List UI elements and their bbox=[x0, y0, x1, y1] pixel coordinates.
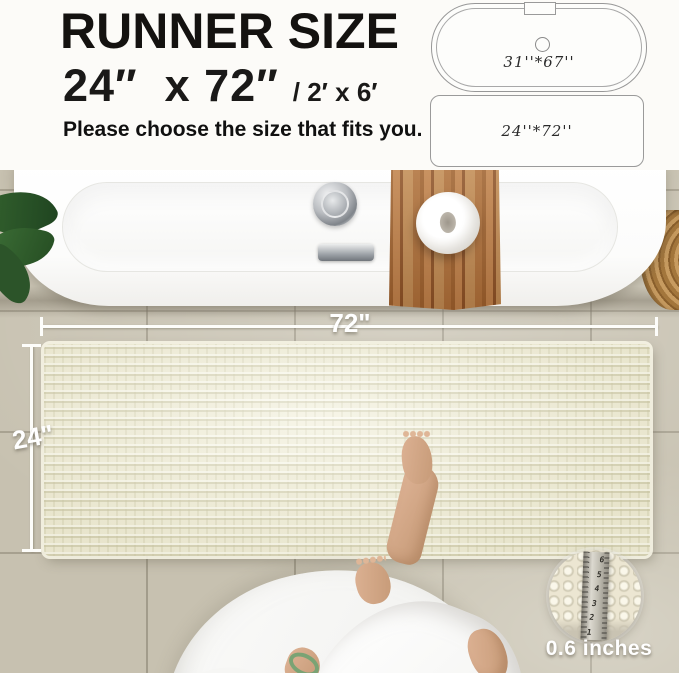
ruler-mark: 2 bbox=[588, 613, 594, 622]
drain-knob-inner bbox=[321, 190, 349, 218]
size-banner: RUNNER SIZE 24″ x 72″ / 2′ x 6′ Please c… bbox=[0, 0, 679, 170]
banner-subtitle: Please choose the size that fits you. bbox=[63, 118, 422, 142]
height-dimension-cap-top bbox=[22, 344, 41, 347]
runner-rug bbox=[44, 344, 650, 556]
bathtub-size-label: 31''*67'' bbox=[432, 53, 646, 71]
ruler-mark: 5 bbox=[596, 570, 602, 579]
bathroom-photo: 72" 24" 6 5 4 3 2 bbox=[0, 170, 679, 673]
width-dimension-cap-right bbox=[655, 317, 658, 336]
size-alt-text: / 2′ x 6′ bbox=[293, 77, 378, 108]
banner-title: RUNNER SIZE bbox=[60, 2, 399, 60]
width-dimension-cap-left bbox=[40, 317, 43, 336]
bathtub-size-diagram: 31''*67'' bbox=[431, 3, 647, 92]
person-right-toes bbox=[403, 429, 431, 440]
bathtub-drain-knob bbox=[313, 182, 357, 226]
ruler-mark: 1 bbox=[586, 628, 592, 637]
bathtub-faucet-mark bbox=[524, 2, 556, 15]
ruler-mark: 3 bbox=[591, 599, 597, 608]
runner-size-diagram: 24''*72'' bbox=[430, 95, 644, 167]
toilet-paper-core bbox=[440, 212, 457, 234]
pile-height-label: 0.6 inches bbox=[524, 637, 674, 661]
width-dimension-label: 72" bbox=[290, 308, 410, 339]
size-row: 24″ x 72″ / 2′ x 6′ bbox=[63, 60, 378, 112]
ruler-icon: 6 5 4 3 2 1 bbox=[580, 552, 609, 641]
runner-size-label: 24''*72'' bbox=[501, 122, 572, 140]
ruler-mark: 4 bbox=[594, 584, 600, 593]
ruler-mark: 6 bbox=[599, 555, 605, 564]
bathtub-drain-icon bbox=[535, 37, 550, 52]
size-main-text: 24″ x 72″ bbox=[63, 60, 279, 112]
product-image: RUNNER SIZE 24″ x 72″ / 2′ x 6′ Please c… bbox=[0, 0, 679, 673]
pile-height-inset: 6 5 4 3 2 1 bbox=[549, 550, 641, 642]
height-dimension-cap-bottom bbox=[22, 549, 41, 552]
bathtub-overflow-plate bbox=[318, 244, 374, 261]
